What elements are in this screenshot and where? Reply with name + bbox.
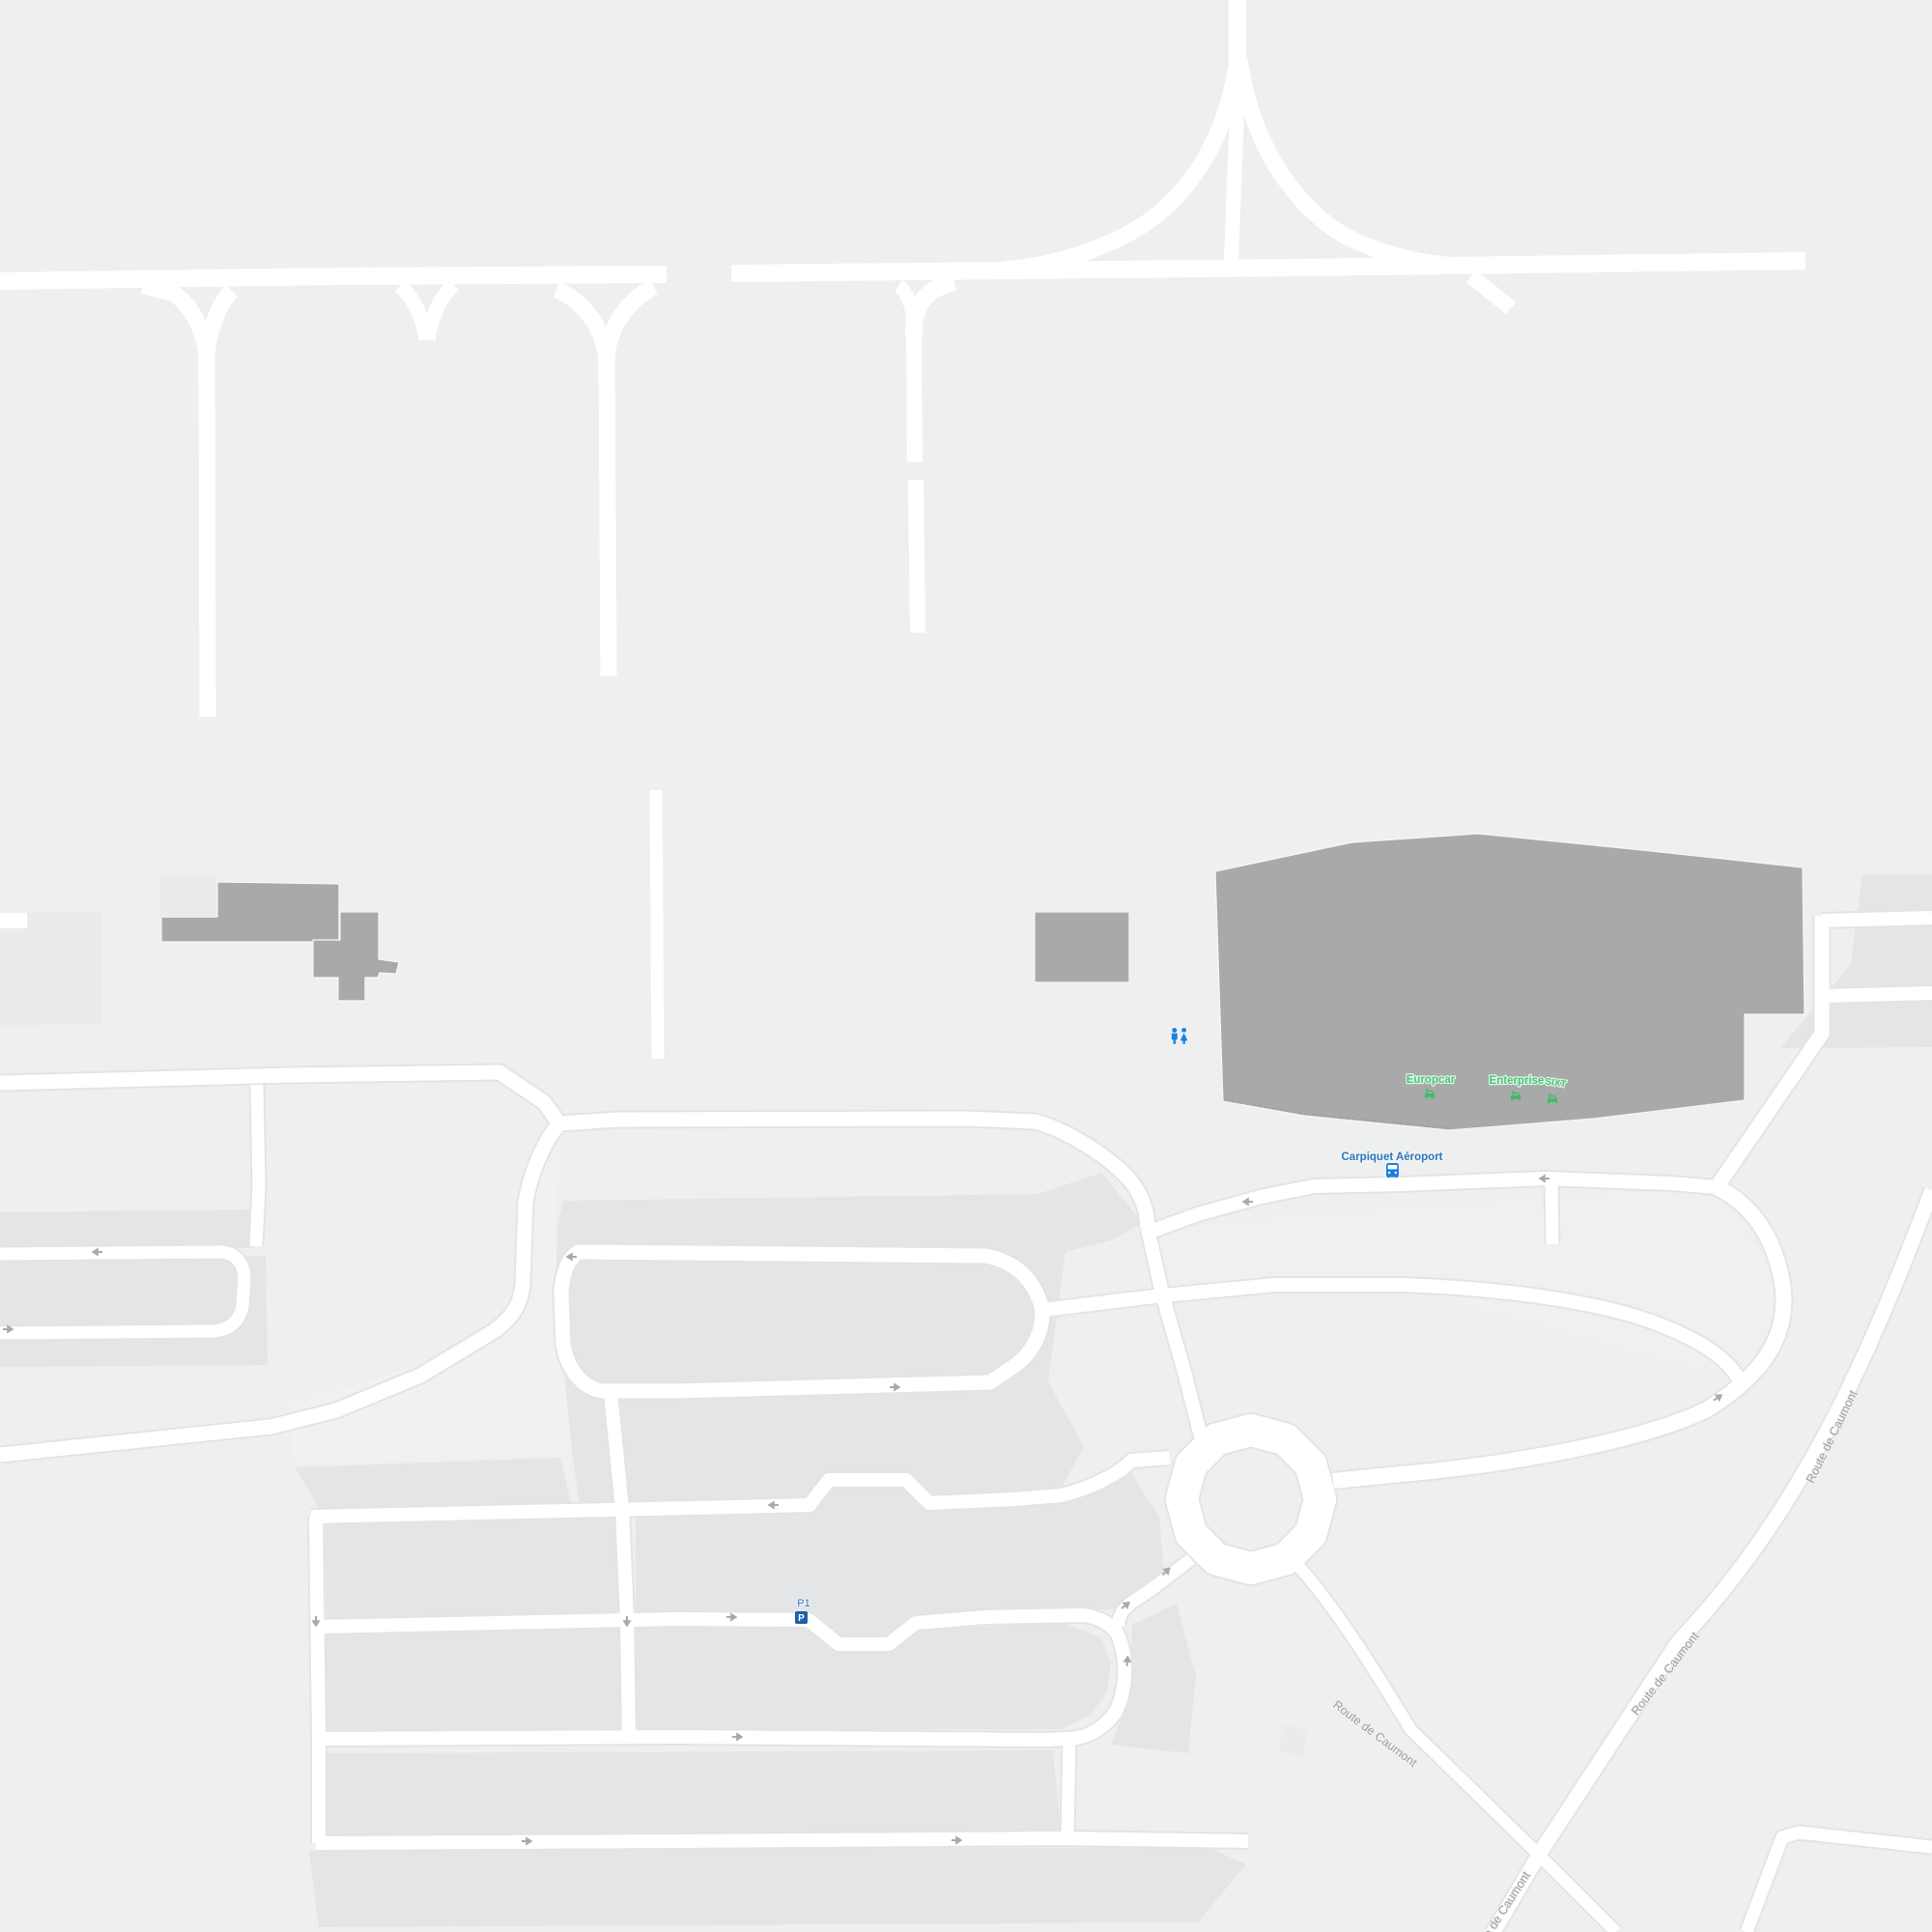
svg-text:Enterprise: Enterprise	[1490, 1075, 1545, 1087]
svg-text:P1: P1	[797, 1598, 810, 1609]
svg-text:P: P	[798, 1613, 805, 1624]
svg-text:Carpiquet Aéroport: Carpiquet Aéroport	[1342, 1151, 1443, 1163]
svg-text:Europcar: Europcar	[1406, 1074, 1456, 1086]
